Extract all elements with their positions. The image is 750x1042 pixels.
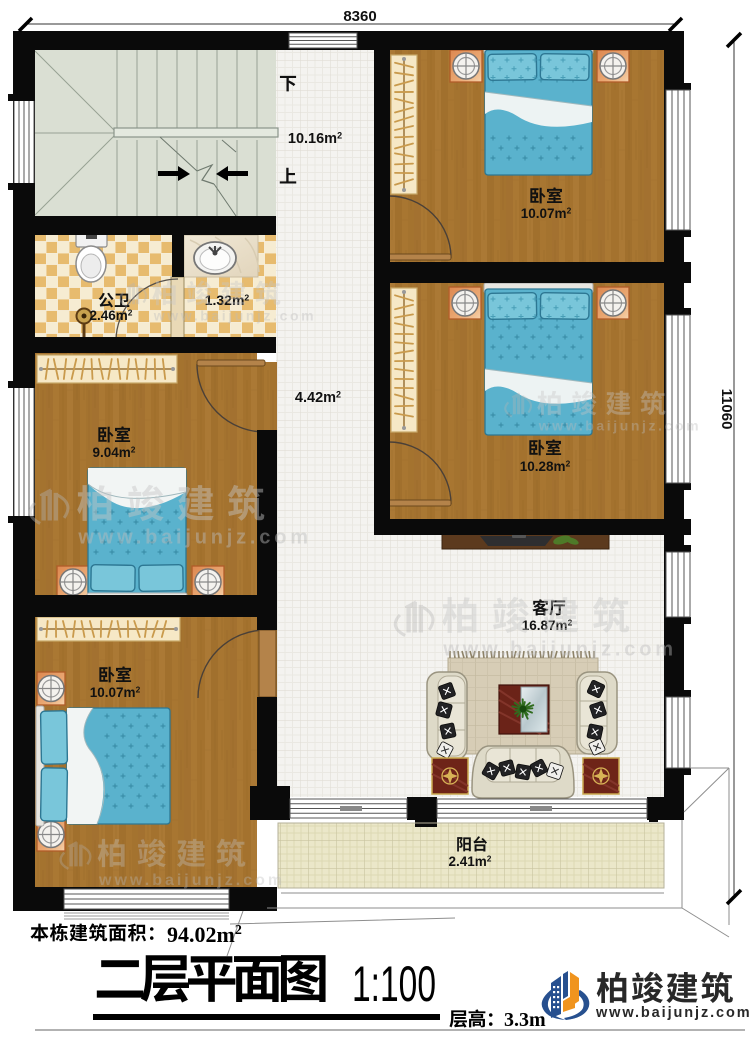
svg-text:11060: 11060 (718, 389, 735, 430)
svg-text:www.baijunjz.com: www.baijunjz.com (77, 526, 311, 548)
svg-text:1:100: 1:100 (352, 956, 436, 1012)
svg-text:10.07m2: 10.07m2 (90, 685, 141, 700)
svg-text:2.46m2: 2.46m2 (90, 308, 133, 323)
svg-text:3.3m: 3.3m (504, 1009, 546, 1031)
svg-text:www.baijunjz.com: www.baijunjz.com (98, 872, 285, 889)
svg-text:www.baijunjz.com: www.baijunjz.com (153, 308, 316, 324)
svg-text:4.42m2: 4.42m2 (295, 389, 341, 406)
svg-text:9.04m2: 9.04m2 (93, 445, 136, 460)
svg-text:www.baijunjz.com: www.baijunjz.com (595, 1005, 750, 1021)
svg-text:www.baijunjz.com: www.baijunjz.com (442, 638, 676, 660)
svg-text:2.41m2: 2.41m2 (449, 854, 492, 869)
svg-text:10.16m2: 10.16m2 (288, 130, 342, 147)
svg-text:94.02m2: 94.02m2 (167, 922, 242, 947)
svg-text:8360: 8360 (343, 8, 376, 25)
svg-text:10.28m2: 10.28m2 (520, 459, 571, 474)
svg-text:10.07m2: 10.07m2 (521, 206, 572, 221)
svg-text:www.baijunjz.com: www.baijunjz.com (538, 418, 701, 434)
